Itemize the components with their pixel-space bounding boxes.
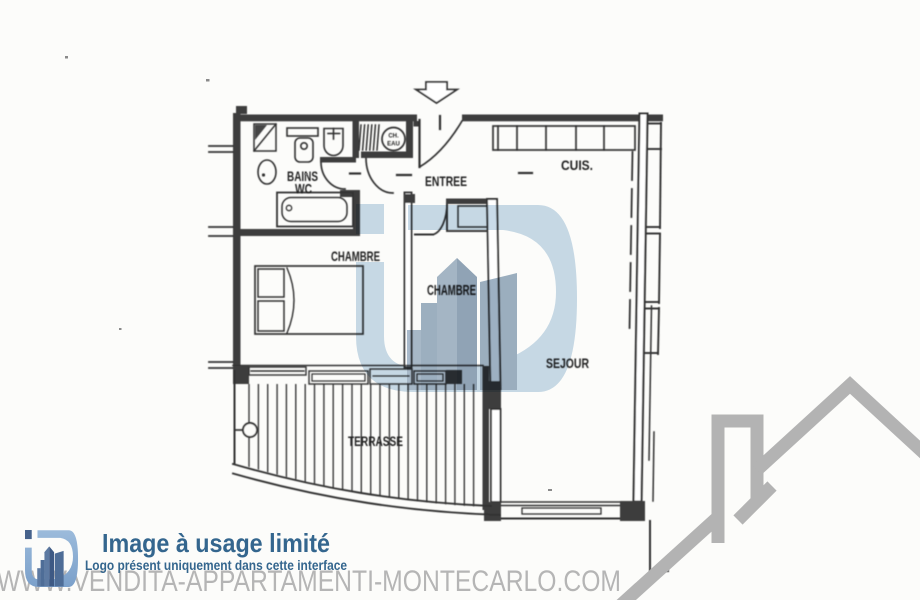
- svg-text:Logo présent uniquement dans c: Logo présent uniquement dans cette inter…: [85, 558, 347, 573]
- svg-text:EAU: EAU: [387, 142, 400, 148]
- svg-text:Image à usage limité: Image à usage limité: [102, 528, 330, 558]
- svg-text:TERRASSE: TERRASSE: [348, 434, 403, 449]
- svg-text:ENTREE: ENTREE: [425, 173, 467, 189]
- svg-text:CUIS.: CUIS.: [561, 157, 593, 173]
- svg-text:CHAMBRE: CHAMBRE: [331, 248, 380, 264]
- svg-text:CH.: CH.: [388, 134, 399, 140]
- svg-text:WC: WC: [295, 181, 312, 197]
